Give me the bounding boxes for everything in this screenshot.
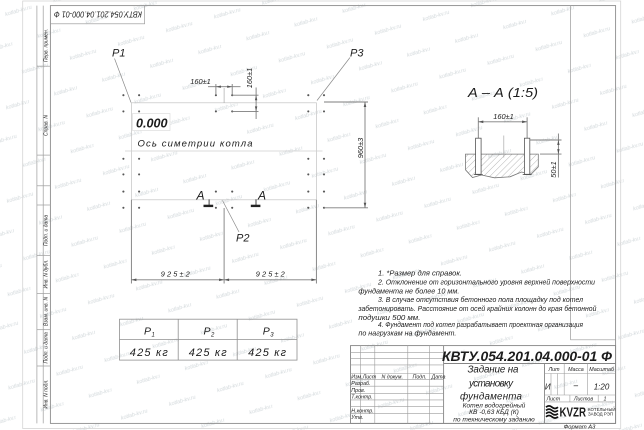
svg-text:установку: установку xyxy=(468,378,514,389)
svg-text:Перв. примен.: Перв. примен. xyxy=(43,29,49,62)
svg-text:Листов: Листов xyxy=(573,397,594,403)
svg-text:Т.контр.: Т.контр. xyxy=(351,395,372,401)
svg-text:А – А (1:5): А – А (1:5) xyxy=(467,86,538,100)
svg-text:1. *Размер для справок.: 1. *Размер для справок. xyxy=(378,269,462,278)
svg-text:–: – xyxy=(573,381,579,390)
svg-text:P: P xyxy=(144,326,151,338)
svg-text:425 кг: 425 кг xyxy=(189,347,228,359)
svg-text:160±1: 160±1 xyxy=(190,77,211,86)
svg-text:ЗАВОД РЭП: ЗАВОД РЭП xyxy=(588,412,613,417)
svg-text:Подп. и дата: Подп. и дата xyxy=(43,215,49,247)
svg-text:KVZR: KVZR xyxy=(560,405,587,420)
svg-text:960±3: 960±3 xyxy=(356,137,365,158)
svg-text:N докум.: N докум. xyxy=(382,374,403,380)
svg-text:КВ -0,63 КБД (К): КВ -0,63 КБД (К) xyxy=(469,409,519,416)
svg-text:1: 1 xyxy=(152,333,155,339)
svg-text:Утв.: Утв. xyxy=(351,415,363,421)
svg-text:Задание на: Задание на xyxy=(468,365,520,376)
svg-text:A: A xyxy=(196,189,205,203)
svg-text:Инв. N подл.: Инв. N подл. xyxy=(43,379,49,408)
svg-text:Дата: Дата xyxy=(431,374,446,380)
svg-text:Подп.: Подп. xyxy=(413,374,427,380)
svg-text:Ось симетрии котла: Ось симетрии котла xyxy=(138,139,253,150)
svg-text:фундамента не более 10 мм.: фундамента не более 10 мм. xyxy=(358,286,459,295)
svg-text:1: 1 xyxy=(604,397,607,403)
svg-text:Н.контр.: Н.контр. xyxy=(351,408,373,414)
svg-text:2: 2 xyxy=(210,333,215,339)
svg-text:фундамента: фундамента xyxy=(460,391,523,402)
svg-text:425 кг: 425 кг xyxy=(248,347,287,359)
svg-text:2. Отклонение от горизонтально: 2. Отклонение от горизонтального уровня … xyxy=(377,278,595,287)
svg-text:160±1: 160±1 xyxy=(493,112,514,121)
svg-text:забетонировать. Расстояние от: забетонировать. Расстояние от осей крайн… xyxy=(357,304,596,313)
svg-text:P3: P3 xyxy=(350,48,364,60)
svg-text:425 кг: 425 кг xyxy=(130,347,169,359)
svg-text:A: A xyxy=(257,189,266,203)
svg-text:Изм.Лист: Изм.Лист xyxy=(351,374,377,380)
svg-text:Масса: Масса xyxy=(568,367,584,373)
svg-text:160±1: 160±1 xyxy=(245,68,254,89)
svg-text:по нагрузкам на фундамент.: по нагрузкам на фундамент. xyxy=(358,328,456,337)
svg-text:Лит: Лит xyxy=(548,367,561,373)
svg-text:Пров.: Пров. xyxy=(351,388,365,394)
svg-text:Взам. инв. N: Взам. инв. N xyxy=(43,297,49,327)
svg-text:1:20: 1:20 xyxy=(594,383,610,392)
svg-text:Инв. N дубл.: Инв. N дубл. xyxy=(43,260,49,289)
svg-text:P2: P2 xyxy=(236,233,249,245)
svg-text:3. В случае отсутствия бетонно: 3. В случае отсутствия бетонного пола пл… xyxy=(378,295,583,304)
svg-text:Подп. и дата: Подп. и дата xyxy=(43,332,49,364)
svg-text:50±1: 50±1 xyxy=(549,161,558,177)
svg-text:Масштаб: Масштаб xyxy=(589,367,615,373)
svg-text:Лист: Лист xyxy=(545,397,560,403)
svg-text:И: И xyxy=(545,383,551,392)
svg-text:Формат А3: Формат А3 xyxy=(564,425,596,430)
svg-text:КВТУ.054.201.04.000-01 Ф: КВТУ.054.201.04.000-01 Ф xyxy=(442,348,612,364)
svg-text:КВТУ.054.201.04.000-01 Ф: КВТУ.054.201.04.000-01 Ф xyxy=(53,9,142,18)
svg-text:Разраб.: Разраб. xyxy=(351,381,370,387)
svg-text:P1: P1 xyxy=(112,48,125,60)
svg-text:по техническому заданию: по техническому заданию xyxy=(453,415,535,423)
svg-text:P: P xyxy=(263,326,270,338)
svg-text:Справ. N: Справ. N xyxy=(43,115,49,136)
svg-text:P: P xyxy=(204,326,211,338)
svg-text:0.000: 0.000 xyxy=(136,116,168,131)
